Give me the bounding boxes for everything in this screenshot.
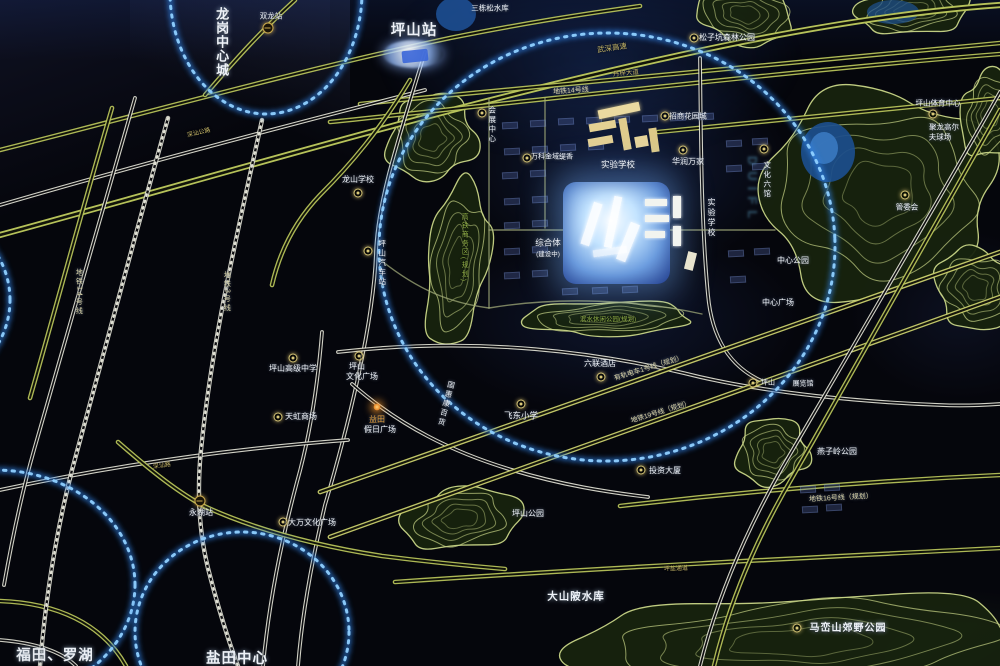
longshan-school-label: 龙山学校 [342,175,374,185]
poi-marker-icon [793,624,802,633]
complex-line2-label: (建设中) [536,251,560,259]
poi-marker-icon [354,189,363,198]
center-park-label: 中心公园 [777,256,809,266]
culture-plaza-line2-label: 文化广场 [346,372,378,382]
poi-marker-icon [690,34,699,43]
pingshan-exhibition-2-label: 展览馆 [793,381,814,390]
pingshan-exhibition-1-label: 坪山 [761,380,775,389]
dawan-culture-plaza-label: 大万文化广场 [288,518,336,528]
road-shenshan-highway-label: 深汕公路 [186,128,211,141]
metro-line3-vertical-label: 地铁3号线 [222,271,231,313]
vanke-jinyu-tixiang-label: 万科金域缇香 [531,154,573,163]
huarun-wanjia-label: 华润万家 [672,157,704,167]
metro-line16-label: 地铁16号线（规划） [809,493,873,505]
metro-station-icon [195,496,206,507]
pingshan-park-label: 坪山公园 [512,509,544,519]
poi-marker-icon [597,373,606,382]
zhaoshang-garden-city-label: 招商花园城 [669,111,707,120]
glass-reflection-letters-label: DUIFL [744,156,760,224]
yonghu-station-label: 永湖站 [189,508,213,518]
illuminated-masterplan-map-photo: 龙岗中心城双龙站坪山站三栋松水库松子坑森林公园武深高速丹梓大道地铁14号线招商花… [0,0,1000,666]
pingshan-sports-center-label: 坪山体育中心 [916,98,961,107]
poi-marker-icon [749,379,758,388]
yitian-line1-label: 益田 [369,415,385,425]
hsr-business-district-label: 高铁商务区(规划) [459,213,467,283]
poi-marker-icon [901,191,910,200]
culture-six-halls-label: 文化六馆 [762,161,771,199]
poi-marker-icon [517,400,526,409]
julong-golf-line2-label: 夫球场 [929,132,952,141]
poi-marker-icon [929,110,938,119]
poi-marker-icon [523,154,532,163]
complex-line1-label: 综合体 [535,238,561,249]
poi-marker-icon [478,109,487,118]
poi-marker-icon [760,145,769,154]
poi-marker-icon [279,518,288,527]
metro-line14-vertical-label: 地铁14号线 [74,268,83,316]
metro-line14-horizontal-label: 地铁14号线 [553,86,589,97]
poi-marker-icon [364,247,373,256]
sandongsong-reservoir-label: 三栋松水库 [471,3,509,12]
liulian-hotel-label: 六联酒店 [584,359,616,369]
maluanshan-country-park-label: 马峦山郊野公园 [810,623,887,636]
shiyan-school-east-label: 实验学校 [706,198,716,238]
poi-marker-icon [637,466,646,475]
map-labels: 龙岗中心城双龙站坪山站三栋松水库松子坑森林公园武深高速丹梓大道地铁14号线招商花… [0,0,1000,666]
poi-marker-icon [289,354,298,363]
dashanbei-reservoir-label: 大山陂水库 [547,590,605,603]
pingshan-high-school-label: 坪山高级中学 [269,364,317,374]
longgang-center-city-label: 龙岗中心城 [213,7,229,77]
feidong-primary-school-label: 飞东小学 [504,411,538,422]
shiyan-school-label: 实验学校 [601,160,635,171]
pingshan-station-label: 坪山站 [391,22,438,40]
danzi-avenue-label: 丹梓大道 [613,69,640,79]
road-shenshan-label: 深汕路 [153,462,172,472]
julong-golf-line1-label: 聚龙高尔 [929,122,959,131]
poi-marker-icon [679,146,688,155]
guanweihui-label: 管委会 [896,202,919,211]
poi-marker-icon [661,112,670,121]
poi-marker-icon [355,352,364,361]
yanziling-park-label: 燕子岭公园 [817,447,857,457]
metro-station-icon [263,23,274,34]
futian-luohu-label: 福田、罗湖 [16,647,94,665]
waterfront-leisure-park-label: 滨水休闲公园(规划) [580,316,636,324]
metro-line19-label: 地铁19号线（规划） [630,400,692,426]
center-plaza-label: 中心广场 [762,298,794,308]
pingshan-bus-station-label: 坪山汽车站 [377,239,386,287]
songzikeng-forest-park-label: 松子坑森林公园 [699,33,755,43]
yantian-center-label: 盐田中心 [206,650,268,666]
road-pingyan-corridor-label: 坪盐通道 [664,566,688,574]
tianhong-mall-label: 天虹商场 [285,412,317,422]
poi-marker-icon [274,413,283,422]
glow-dot-icon [374,404,381,411]
yitian-line2-label: 假日广场 [364,425,396,435]
shuanglong-station-label: 双龙站 [260,11,283,20]
tram-line1-label: 有轨电车1号线（规划） [613,354,684,383]
convention-center-label: 会展中心 [487,106,496,144]
culture-plaza-line1-label: 坪山 [349,362,365,372]
wushen-expressway-label: 武深高速 [596,41,627,54]
investment-tower-label: 投资大厦 [649,466,681,476]
guohuikang-store-label: 国惠康百货 [436,380,457,428]
